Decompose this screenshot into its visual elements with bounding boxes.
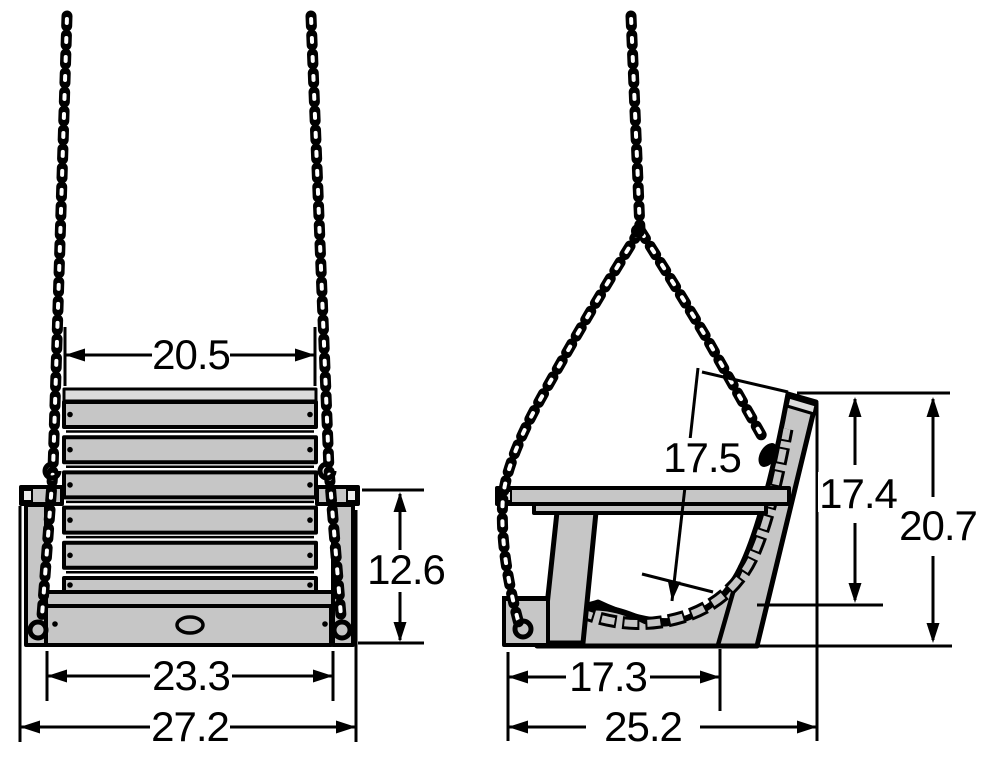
chain-junction-ring-icon bbox=[631, 224, 645, 238]
dim-label: 20.7 bbox=[899, 502, 977, 549]
back-slat bbox=[64, 402, 316, 427]
dim-label: 17.4 bbox=[819, 470, 897, 517]
diagram-canvas: 20.5 12.6 23.3 bbox=[0, 0, 990, 762]
background bbox=[0, 0, 990, 762]
dim-label: 20.5 bbox=[152, 331, 230, 378]
back-slat bbox=[64, 543, 316, 568]
left-armrest-cap bbox=[23, 490, 32, 501]
dim-label: 27.2 bbox=[151, 703, 229, 750]
back-slat bbox=[64, 508, 316, 533]
side-armrest bbox=[497, 488, 789, 504]
right-armrest-cap bbox=[347, 490, 356, 501]
dim-label: 17.3 bbox=[569, 653, 647, 700]
back-slat bbox=[64, 472, 316, 497]
dim-label: 12.6 bbox=[367, 546, 445, 593]
front-swing-body bbox=[21, 389, 358, 645]
back-slat bbox=[64, 437, 316, 462]
dim-label: 17.5 bbox=[663, 434, 741, 481]
apron-screw bbox=[322, 621, 328, 627]
back-top-cap bbox=[64, 389, 316, 401]
dimension-diagram: 20.5 12.6 23.3 bbox=[0, 0, 990, 762]
dim-label: 23.3 bbox=[152, 652, 230, 699]
seat-front-rail bbox=[46, 592, 333, 606]
dim-label: 25.2 bbox=[604, 703, 682, 750]
apron-screw bbox=[52, 621, 58, 627]
front-apron bbox=[28, 606, 331, 645]
